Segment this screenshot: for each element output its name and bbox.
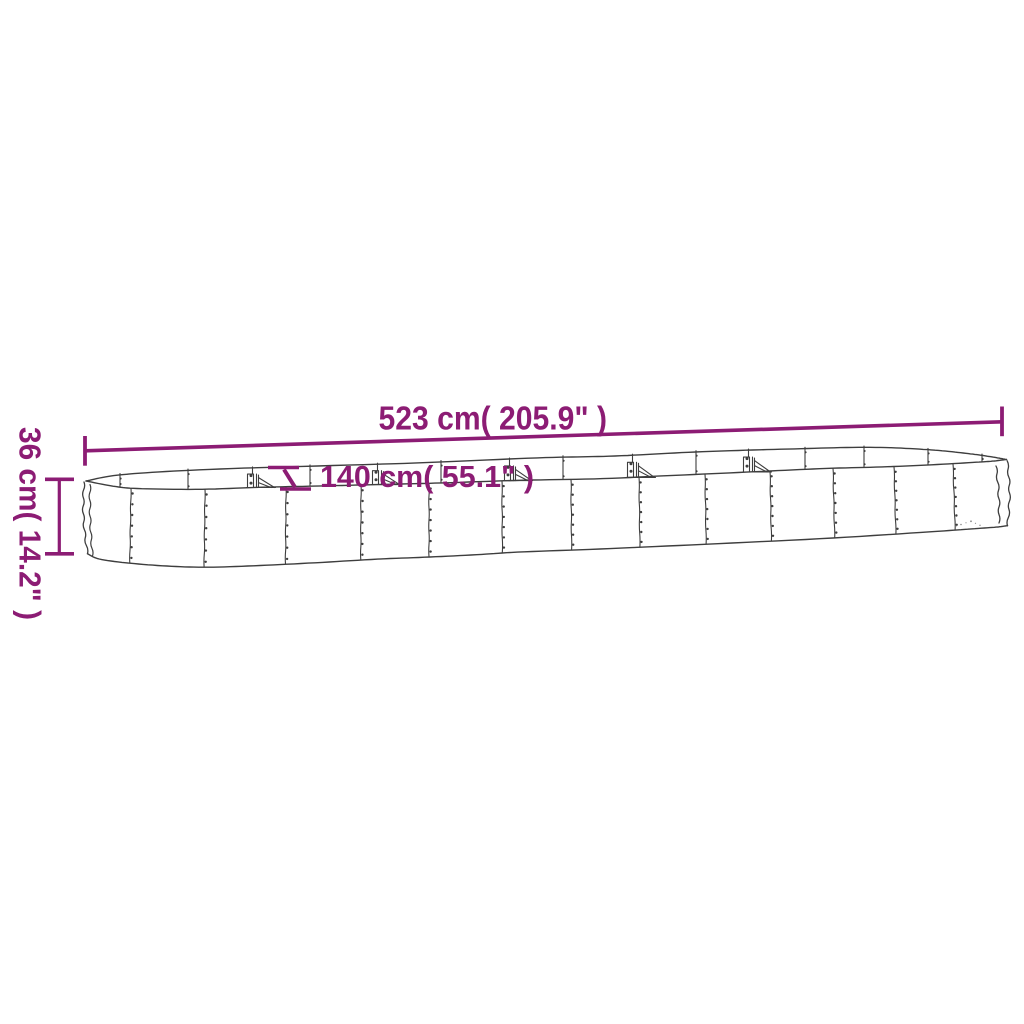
svg-text:140 cm( 55.1" ): 140 cm( 55.1" ) [320,460,534,494]
svg-text:523 cm( 205.9" ): 523 cm( 205.9" ) [379,400,608,437]
svg-text:36 cm( 14.2" ): 36 cm( 14.2" ) [13,427,47,620]
